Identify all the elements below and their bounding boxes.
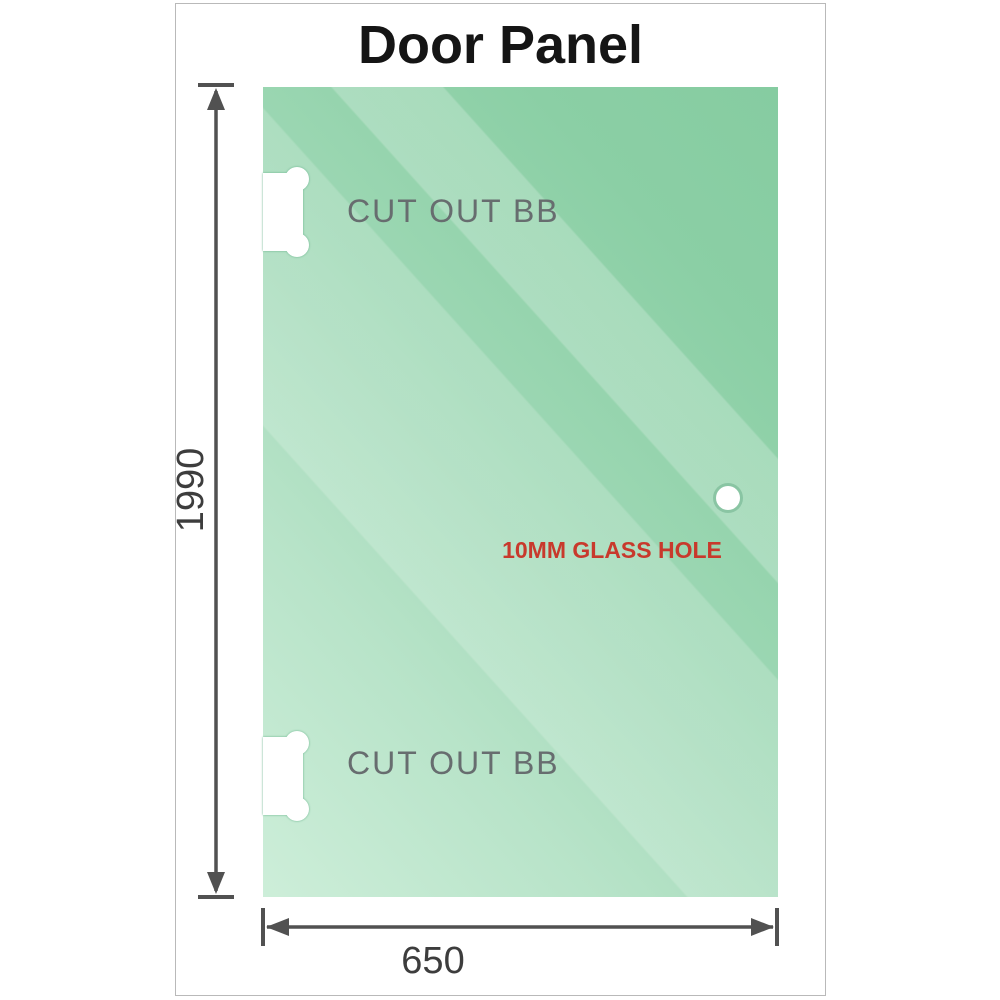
dimension-graphics [261, 908, 779, 946]
arrow-left-icon [266, 918, 289, 936]
arrow-down-icon [207, 872, 225, 894]
cutout-bb-bottom-shape [263, 729, 311, 823]
left-end-cap [261, 908, 265, 946]
glass-hole [716, 486, 740, 510]
cutout-bb-top-shape [263, 165, 311, 259]
glass-hole-label: 10MM GLASS HOLE [502, 537, 722, 564]
cutout-bb-bottom-label: CUT OUT BB [347, 745, 560, 782]
arrow-right-icon [751, 918, 774, 936]
bottom-end-cap [198, 895, 234, 899]
cutout-bb-top-label: CUT OUT BB [347, 193, 560, 230]
page-background: Door Panel 1990 650 [0, 0, 1000, 1000]
arrow-up-icon [207, 88, 225, 110]
cutout-shape [263, 167, 309, 257]
page-title: Door Panel [176, 14, 825, 76]
dimension-line [267, 925, 773, 929]
cutout-shape [263, 731, 309, 821]
height-dimension-label: 1990 [166, 445, 216, 535]
top-end-cap [198, 83, 234, 87]
drawing-card: Door Panel 1990 650 [175, 3, 826, 996]
width-dimension-label: 650 [353, 940, 513, 983]
right-end-cap [775, 908, 779, 946]
width-dimension-arrow [261, 908, 781, 948]
